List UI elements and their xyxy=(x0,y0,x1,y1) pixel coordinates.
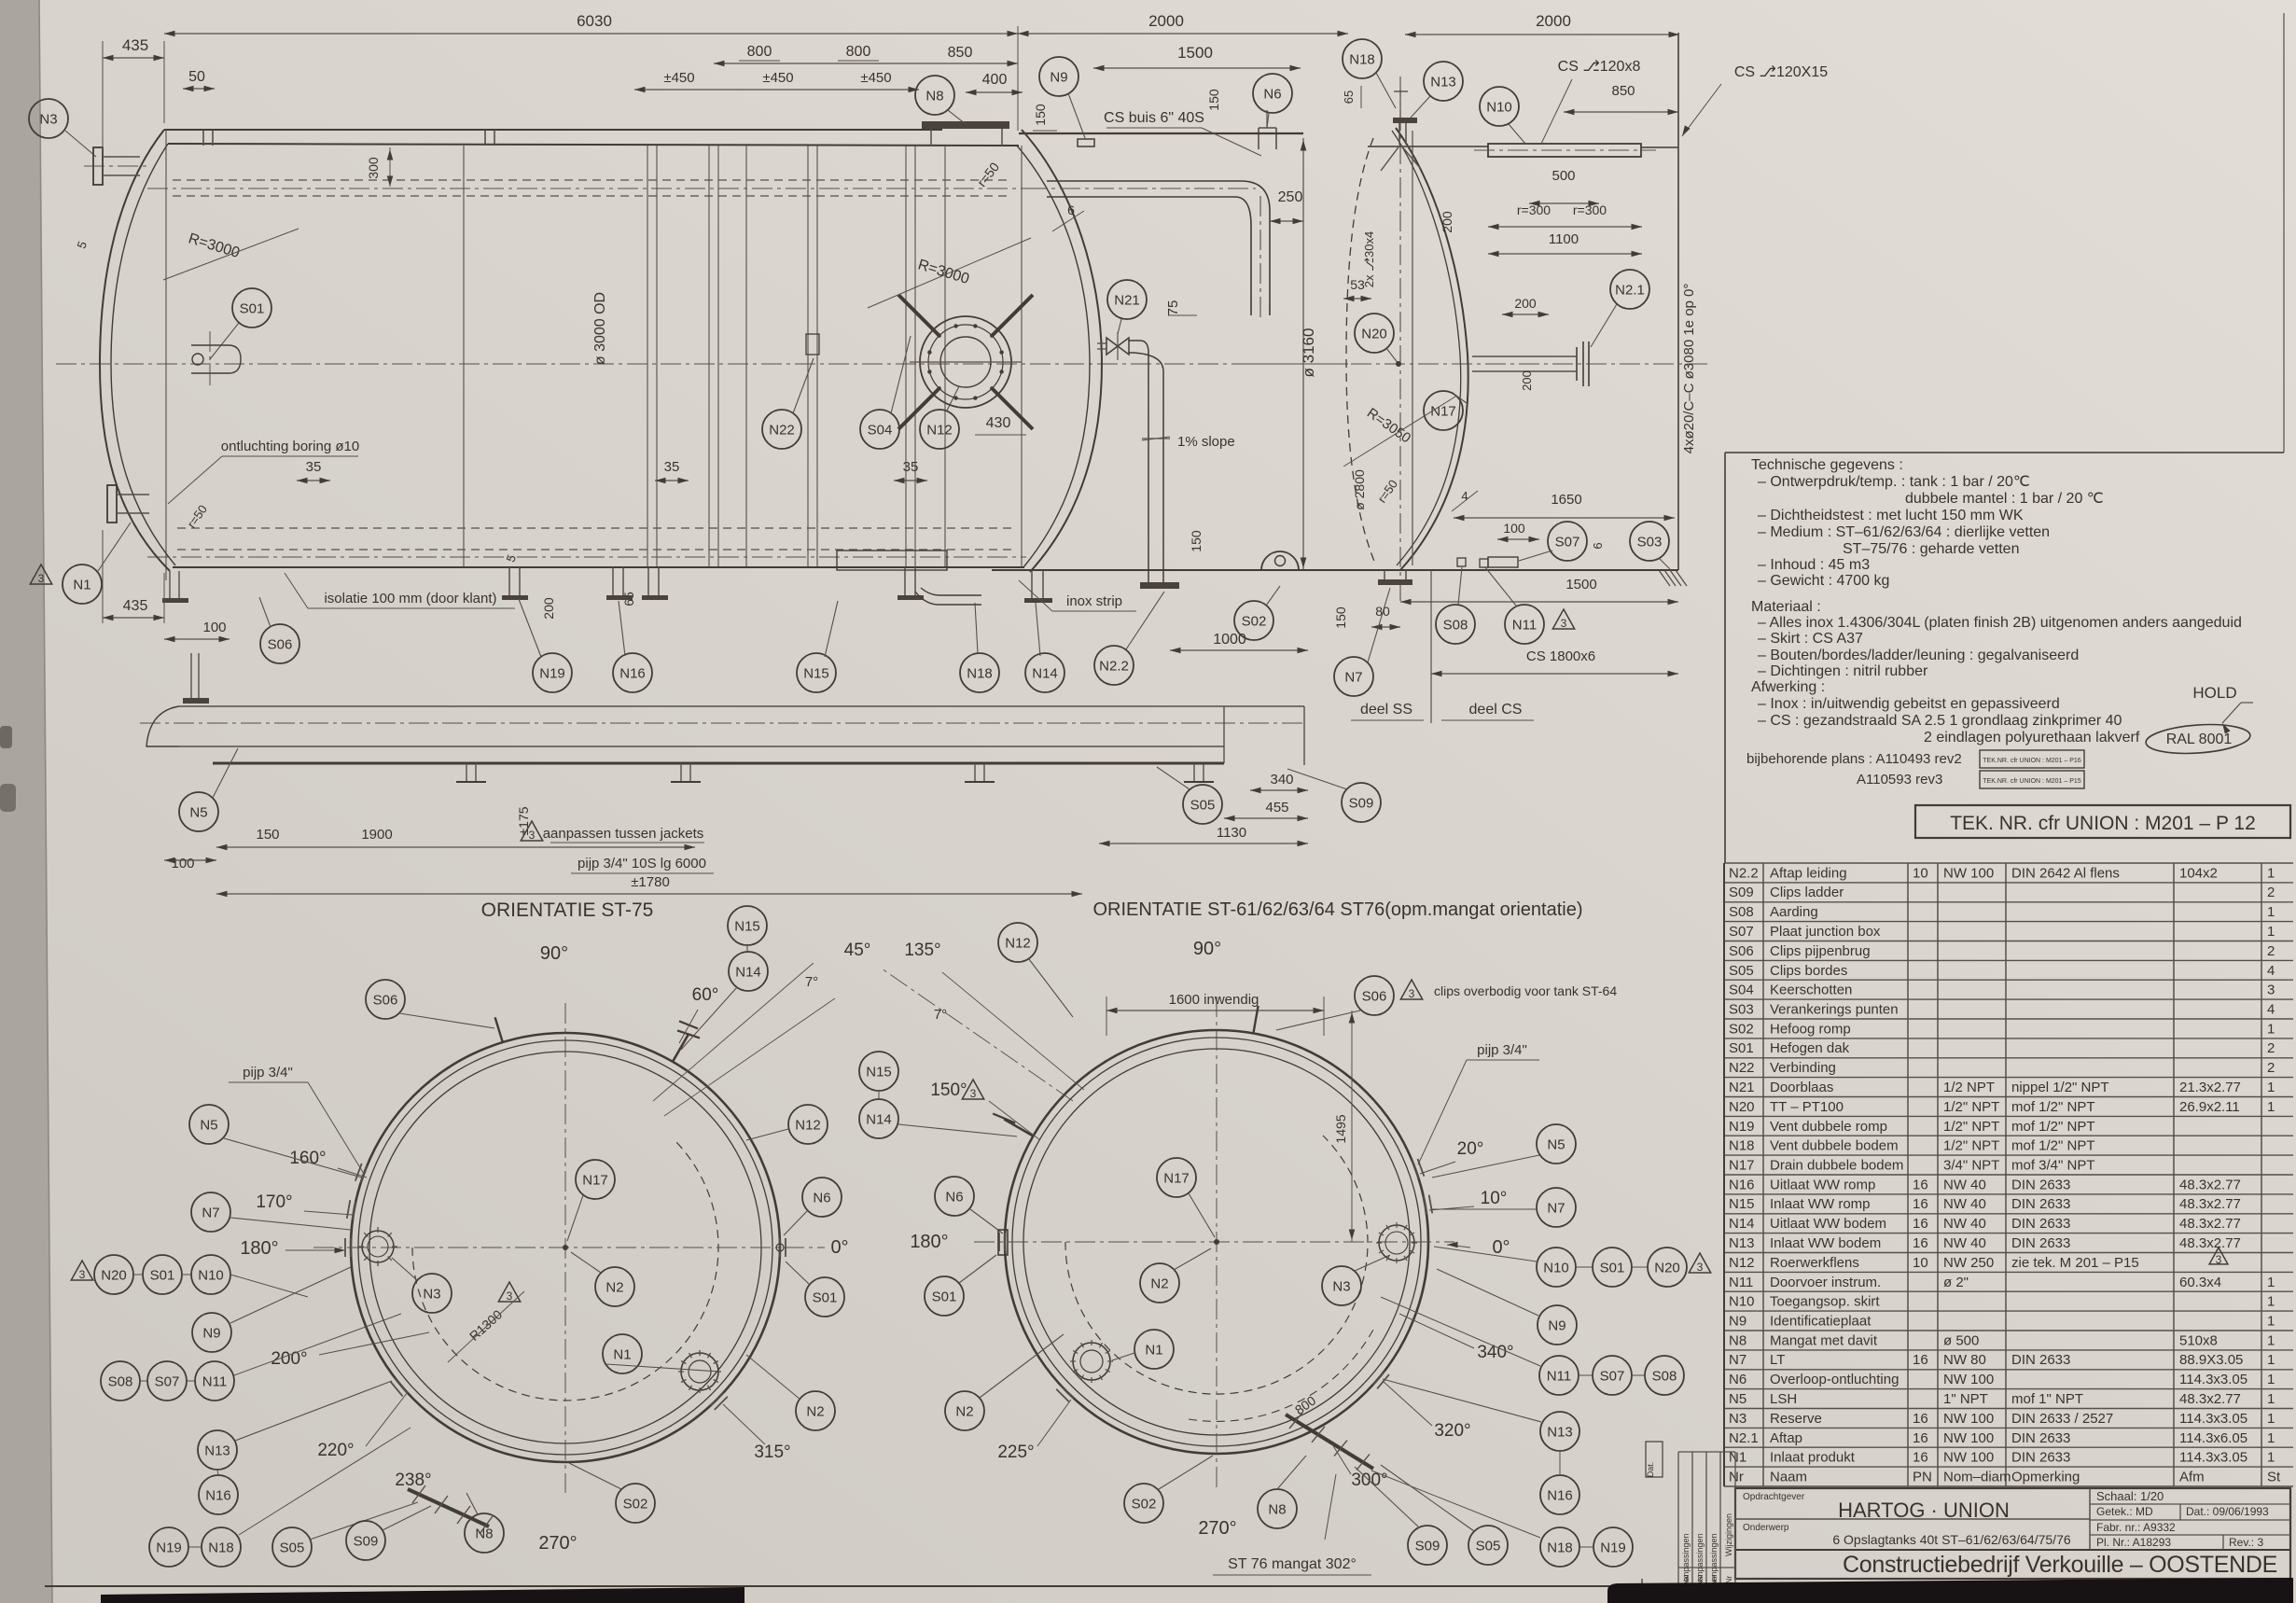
svg-text:270°: 270° xyxy=(1198,1518,1236,1539)
svg-text:1/2" NPT: 1/2" NPT xyxy=(1943,1099,1999,1115)
svg-text:N2: N2 xyxy=(955,1403,973,1419)
svg-text:Uitlaat WW romp: Uitlaat WW romp xyxy=(1770,1177,1875,1192)
svg-text:435: 435 xyxy=(123,598,148,614)
svg-text:75: 75 xyxy=(1165,300,1181,316)
svg-text:N14: N14 xyxy=(1729,1216,1755,1232)
svg-text:N3: N3 xyxy=(1332,1278,1350,1294)
svg-text:S07: S07 xyxy=(1555,534,1580,550)
svg-text:1130: 1130 xyxy=(1217,825,1246,841)
svg-text:Vent dubbele romp: Vent dubbele romp xyxy=(1770,1119,1887,1135)
svg-text:mof 1/2" NPT: mof 1/2" NPT xyxy=(2011,1138,2095,1154)
svg-text:510x8: 510x8 xyxy=(2179,1332,2218,1348)
svg-text:mof 1/2" NPT: mof 1/2" NPT xyxy=(2011,1099,2095,1115)
svg-text:S08: S08 xyxy=(108,1373,133,1389)
svg-text:ø 3000 OD: ø 3000 OD xyxy=(592,292,608,365)
svg-text:N6: N6 xyxy=(1729,1372,1746,1387)
svg-text:Afm: Afm xyxy=(2179,1470,2205,1485)
svg-text:Onderwerp: Onderwerp xyxy=(1743,1523,1789,1533)
svg-text:N2: N2 xyxy=(605,1279,623,1295)
svg-text:– Dichtingen : nitril rubber: – Dichtingen : nitril rubber xyxy=(1758,663,1928,679)
svg-text:Uitlaat WW bodem: Uitlaat WW bodem xyxy=(1770,1216,1886,1232)
svg-text:DIN 2633: DIN 2633 xyxy=(2011,1196,2070,1212)
svg-text:48.3x2.77: 48.3x2.77 xyxy=(2179,1235,2241,1251)
svg-text:435: 435 xyxy=(122,36,148,54)
svg-text:1000: 1000 xyxy=(1213,632,1246,648)
svg-text:2000: 2000 xyxy=(1536,12,1571,30)
svg-text:320°: 320° xyxy=(1434,1421,1470,1441)
svg-text:1: 1 xyxy=(2267,1352,2275,1368)
svg-text:Afwerking :: Afwerking : xyxy=(1751,679,1825,695)
svg-text:48.3x2.77: 48.3x2.77 xyxy=(2179,1216,2241,1232)
svg-text:N19: N19 xyxy=(539,665,565,681)
svg-text:N9: N9 xyxy=(202,1325,220,1341)
svg-text:ø 2800: ø 2800 xyxy=(1352,469,1367,510)
svg-text:Fabr. nr.: A9332: Fabr. nr.: A9332 xyxy=(2096,1521,2176,1534)
svg-text:180°: 180° xyxy=(240,1238,278,1259)
svg-text:Clips bordes: Clips bordes xyxy=(1770,963,1847,979)
svg-text:16: 16 xyxy=(1913,1450,1928,1466)
svg-text:N6: N6 xyxy=(945,1189,963,1205)
svg-text:LT: LT xyxy=(1770,1352,1785,1368)
svg-text:S09: S09 xyxy=(1349,795,1374,811)
svg-text:– Inhoud : 45 m3: – Inhoud : 45 m3 xyxy=(1758,557,1870,573)
svg-text:300: 300 xyxy=(366,157,381,179)
svg-text:800: 800 xyxy=(846,44,871,60)
svg-text:N7: N7 xyxy=(1547,1200,1565,1216)
svg-text:TEK.NR. cfr UNION : M201 – P16: TEK.NR. cfr UNION : M201 – P16 xyxy=(1983,758,2081,764)
svg-text:500: 500 xyxy=(1552,168,1575,184)
svg-text:A110593 rev3: A110593 rev3 xyxy=(1857,772,1942,788)
svg-text:ORIENTATIE ST-61/62/63/64 ST7: ORIENTATIE ST-61/62/63/64 ST76(opm.manga… xyxy=(1092,899,1582,920)
svg-text:N7: N7 xyxy=(202,1205,219,1220)
svg-text:Inlaat WW romp: Inlaat WW romp xyxy=(1770,1196,1871,1212)
svg-text:1: 1 xyxy=(2267,865,2275,881)
svg-text:Materiaal :: Materiaal : xyxy=(1751,599,1821,615)
svg-text:N9: N9 xyxy=(1729,1314,1746,1330)
svg-text:N19: N19 xyxy=(156,1540,182,1555)
svg-text:N15: N15 xyxy=(803,665,829,681)
svg-text:Clips pijpenbrug: Clips pijpenbrug xyxy=(1770,943,1871,959)
svg-text:S06: S06 xyxy=(268,636,293,652)
svg-text:1/2" NPT: 1/2" NPT xyxy=(1943,1138,1999,1154)
svg-text:1: 1 xyxy=(2267,1332,2275,1348)
svg-text:1/2" NPT: 1/2" NPT xyxy=(1943,1119,1999,1135)
svg-text:DIN 2633: DIN 2633 xyxy=(2011,1216,2070,1232)
svg-text:Doorblaas: Doorblaas xyxy=(1770,1080,1833,1095)
svg-text:N15: N15 xyxy=(734,918,760,934)
svg-text:Nom–diam: Nom–diam xyxy=(1943,1470,2011,1485)
svg-text:1100: 1100 xyxy=(1549,231,1579,247)
svg-text:ø 500: ø 500 xyxy=(1943,1332,1979,1348)
svg-text:N11: N11 xyxy=(202,1373,227,1389)
svg-text:±1780: ±1780 xyxy=(631,874,670,890)
svg-text:S05: S05 xyxy=(1190,797,1216,813)
svg-text:N2.2: N2.2 xyxy=(1729,865,1759,881)
svg-text:S03: S03 xyxy=(1729,1002,1754,1018)
svg-text:DIN 2633 / 2527: DIN 2633 / 2527 xyxy=(2011,1411,2113,1427)
svg-text:N21: N21 xyxy=(1114,292,1140,308)
svg-text:N3: N3 xyxy=(1729,1411,1746,1427)
svg-text:2: 2 xyxy=(2267,943,2275,959)
svg-text:150°: 150° xyxy=(930,1080,967,1100)
svg-text:N5: N5 xyxy=(1547,1136,1565,1152)
svg-text:400: 400 xyxy=(982,72,1008,88)
svg-text:53: 53 xyxy=(1350,277,1365,292)
svg-text:deel SS: deel SS xyxy=(1360,702,1412,718)
svg-text:Aftap leiding: Aftap leiding xyxy=(1770,865,1847,881)
svg-text:Inlaat WW bodem: Inlaat WW bodem xyxy=(1770,1235,1881,1251)
svg-text:1" NPT: 1" NPT xyxy=(1943,1391,1988,1407)
svg-text:250: 250 xyxy=(1278,189,1303,205)
svg-text:3: 3 xyxy=(507,1289,513,1303)
svg-text:DIN 2633: DIN 2633 xyxy=(2011,1430,2070,1446)
svg-text:S08: S08 xyxy=(1729,904,1754,920)
svg-text:60°: 60° xyxy=(692,985,719,1005)
svg-text:N8: N8 xyxy=(1729,1332,1746,1348)
svg-text:r=300: r=300 xyxy=(1517,202,1551,217)
svg-text:NW 100: NW 100 xyxy=(1943,1450,1994,1466)
svg-text:220°: 220° xyxy=(317,1441,354,1460)
svg-text:Identificatieplaat: Identificatieplaat xyxy=(1770,1314,1872,1330)
svg-text:100: 100 xyxy=(202,620,226,635)
svg-text:N13: N13 xyxy=(1729,1235,1755,1251)
svg-text:±450: ±450 xyxy=(762,70,793,86)
svg-text:ST–75/76 : geharde vetten: ST–75/76 : geharde vetten xyxy=(1843,541,2019,557)
svg-text:7°: 7° xyxy=(805,974,818,990)
svg-text:135°: 135° xyxy=(904,941,940,960)
svg-text:6: 6 xyxy=(1067,202,1075,217)
svg-text:ST 76 mangat 302°: ST 76 mangat 302° xyxy=(1228,1556,1357,1572)
svg-text:10°: 10° xyxy=(1481,1189,1508,1208)
svg-text:N12: N12 xyxy=(1005,935,1031,951)
svg-text:3: 3 xyxy=(2216,1253,2222,1266)
svg-text:N18: N18 xyxy=(1349,51,1375,67)
svg-text:N5: N5 xyxy=(200,1117,217,1133)
svg-text:ø 3160: ø 3160 xyxy=(1300,328,1317,378)
svg-text:NW 100: NW 100 xyxy=(1943,1430,1994,1446)
svg-text:S09: S09 xyxy=(1729,885,1754,900)
svg-text:NW 100: NW 100 xyxy=(1943,1372,1994,1387)
svg-text:26.9x2.11: 26.9x2.11 xyxy=(2179,1099,2240,1115)
svg-text:0°: 0° xyxy=(830,1237,848,1258)
svg-text:HOLD: HOLD xyxy=(2192,684,2236,702)
svg-text:Roerwerkflens: Roerwerkflens xyxy=(1770,1255,1859,1271)
svg-text:S07: S07 xyxy=(155,1373,180,1389)
svg-text:16: 16 xyxy=(1913,1430,1928,1446)
svg-text:N20: N20 xyxy=(1729,1099,1755,1115)
svg-text:3/4" NPT: 3/4" NPT xyxy=(1943,1158,1999,1174)
svg-text:Keerschotten: Keerschotten xyxy=(1770,983,1852,998)
svg-text:deel CS: deel CS xyxy=(1469,702,1523,718)
svg-text:2000: 2000 xyxy=(1148,12,1184,30)
svg-text:S04: S04 xyxy=(868,422,893,438)
svg-text:NW 250: NW 250 xyxy=(1943,1255,1994,1271)
svg-text:104x2: 104x2 xyxy=(2179,865,2218,881)
svg-text:N5: N5 xyxy=(1729,1391,1746,1407)
svg-text:dubbele mantel : 1 bar / 20 ℃: dubbele mantel : 1 bar / 20 ℃ xyxy=(1905,491,2104,507)
svg-text:180°: 180° xyxy=(910,1232,948,1252)
svg-text:N14: N14 xyxy=(735,964,761,980)
svg-text:RAL 8001: RAL 8001 xyxy=(2166,732,2233,747)
svg-text:1: 1 xyxy=(2267,904,2275,920)
svg-text:N18: N18 xyxy=(1729,1138,1755,1154)
svg-text:315°: 315° xyxy=(754,1443,790,1462)
svg-text:21.3x2.77: 21.3x2.77 xyxy=(2179,1080,2241,1095)
svg-text:200: 200 xyxy=(1520,370,1534,391)
svg-text:S06: S06 xyxy=(373,992,398,1008)
svg-text:1% slope: 1% slope xyxy=(1177,434,1235,450)
svg-text:S08: S08 xyxy=(1443,617,1468,633)
svg-text:150: 150 xyxy=(1333,606,1348,629)
svg-text:N2.1: N2.1 xyxy=(1615,282,1645,298)
svg-text:S09: S09 xyxy=(1415,1538,1440,1554)
svg-text:Plaat junction box: Plaat junction box xyxy=(1770,924,1881,940)
svg-text:35: 35 xyxy=(664,459,680,475)
svg-text:NW 80: NW 80 xyxy=(1943,1352,1986,1368)
svg-text:aanpassen tussen jackets: aanpassen tussen jackets xyxy=(543,826,704,842)
svg-text:N19: N19 xyxy=(1729,1119,1755,1135)
svg-text:3: 3 xyxy=(79,1268,86,1281)
svg-text:S01: S01 xyxy=(150,1267,175,1283)
svg-text:TT – PT100: TT – PT100 xyxy=(1770,1099,1844,1115)
svg-text:1: 1 xyxy=(2267,1372,2275,1387)
svg-text:CS ⎇120x8: CS ⎇120x8 xyxy=(1558,59,1641,75)
svg-text:mof 3/4" NPT: mof 3/4" NPT xyxy=(2011,1158,2095,1174)
svg-text:N18: N18 xyxy=(1547,1540,1573,1555)
svg-text:S06: S06 xyxy=(1729,943,1754,959)
svg-text:– CS : gezandstraald SA 2.5: – CS : gezandstraald SA 2.5 1 grondlaag … xyxy=(1758,713,2122,729)
svg-text:N20: N20 xyxy=(1654,1260,1680,1275)
svg-text:N9: N9 xyxy=(1050,69,1067,85)
svg-text:1: 1 xyxy=(2267,1021,2275,1037)
svg-text:Inlaat produkt: Inlaat produkt xyxy=(1770,1450,1856,1466)
svg-text:S01: S01 xyxy=(240,300,265,316)
svg-text:mof 1/2" NPT: mof 1/2" NPT xyxy=(2011,1119,2095,1135)
svg-text:N19: N19 xyxy=(1600,1540,1626,1555)
svg-text:Opdrachtgever: Opdrachtgever xyxy=(1743,1492,1805,1502)
svg-text:DIN 2633: DIN 2633 xyxy=(2011,1450,2070,1466)
svg-text:– Bouten/bordes/ladder/leunin: – Bouten/bordes/ladder/leuning : gegalva… xyxy=(1758,648,2079,663)
svg-text:Schaal: 1/20: Schaal: 1/20 xyxy=(2096,1489,2164,1503)
svg-text:Verbinding: Verbinding xyxy=(1770,1060,1836,1076)
svg-text:2 eindlagen polyurethaan lakve: 2 eindlagen polyurethaan lakverf xyxy=(1924,730,2140,746)
svg-text:Verankerings punten: Verankerings punten xyxy=(1770,1002,1899,1018)
svg-text:N2.2: N2.2 xyxy=(1099,658,1129,674)
svg-text:48.3x2.77: 48.3x2.77 xyxy=(2179,1196,2241,1212)
svg-text:CS ⎇120X15: CS ⎇120X15 xyxy=(1734,64,1828,80)
svg-text:N15: N15 xyxy=(866,1064,892,1080)
svg-text:Hefoog romp: Hefoog romp xyxy=(1770,1021,1851,1037)
svg-text:1: 1 xyxy=(2267,1314,2275,1330)
svg-text:N7: N7 xyxy=(1344,669,1362,685)
svg-text:Wijzigingen: Wijzigingen xyxy=(1724,1513,1733,1556)
svg-text:Clips ladder: Clips ladder xyxy=(1770,885,1844,900)
svg-text:N21: N21 xyxy=(1729,1080,1755,1095)
svg-text:N17: N17 xyxy=(1729,1158,1755,1174)
svg-text:Reserve: Reserve xyxy=(1770,1411,1822,1427)
svg-text:N16: N16 xyxy=(205,1487,231,1503)
svg-text:150: 150 xyxy=(256,827,279,843)
svg-text:35: 35 xyxy=(306,459,322,475)
svg-text:1650: 1650 xyxy=(1551,492,1581,508)
svg-text:mof 1" NPT: mof 1" NPT xyxy=(2011,1391,2083,1407)
svg-text:N20: N20 xyxy=(1361,326,1387,342)
svg-text:N6: N6 xyxy=(1263,86,1281,102)
svg-text:1900: 1900 xyxy=(361,827,392,843)
svg-text:N2: N2 xyxy=(806,1403,824,1419)
svg-text:90°: 90° xyxy=(540,943,568,964)
svg-text:N17: N17 xyxy=(582,1172,608,1188)
svg-text:1: 1 xyxy=(2267,1430,2275,1446)
svg-text:Pl. Nr.: A18293: Pl. Nr.: A18293 xyxy=(2096,1536,2171,1549)
svg-text:– Dichtheidstest : met lucht: – Dichtheidstest : met lucht 150 mm WK xyxy=(1758,508,2024,523)
svg-text:16: 16 xyxy=(1913,1196,1928,1212)
svg-text:850: 850 xyxy=(1611,83,1635,99)
svg-text:– Inox : in/uitwendig gebeits: – Inox : in/uitwendig gebeitst en gepass… xyxy=(1758,696,2060,712)
svg-text:N6: N6 xyxy=(813,1190,830,1206)
svg-text:Opmerking: Opmerking xyxy=(2011,1470,2080,1485)
svg-text:N10: N10 xyxy=(198,1267,224,1283)
svg-text:S03: S03 xyxy=(1637,534,1663,550)
svg-text:Aftap: Aftap xyxy=(1770,1430,1802,1446)
svg-text:Technische gegevens :: Technische gegevens : xyxy=(1751,457,1903,473)
svg-text:NW 40: NW 40 xyxy=(1943,1177,1986,1192)
svg-text:3: 3 xyxy=(2267,983,2275,998)
svg-text:48.3x2.77: 48.3x2.77 xyxy=(2179,1177,2241,1192)
svg-text:114.3x6.05: 114.3x6.05 xyxy=(2179,1430,2247,1446)
svg-text:N1: N1 xyxy=(73,577,90,592)
svg-text:DIN 2633: DIN 2633 xyxy=(2011,1177,2070,1192)
svg-text:200: 200 xyxy=(541,597,556,620)
svg-text:455: 455 xyxy=(1265,800,1288,815)
svg-text:zie tek. M 201 – P15: zie tek. M 201 – P15 xyxy=(2011,1255,2139,1271)
svg-text:S02: S02 xyxy=(1132,1496,1157,1512)
svg-text:S08: S08 xyxy=(1652,1368,1677,1384)
svg-text:1: 1 xyxy=(2267,1080,2275,1095)
svg-text:DIN 2642 Al flens: DIN 2642 Al flens xyxy=(2011,865,2120,881)
svg-text:4xø20/C–C ø3080 1e op 0°: 4xø20/C–C ø3080 1e op 0° xyxy=(1681,284,1697,454)
svg-text:35: 35 xyxy=(903,459,919,475)
svg-text:48.3x2.77: 48.3x2.77 xyxy=(2179,1391,2241,1407)
svg-text:270°: 270° xyxy=(538,1533,577,1554)
svg-text:1: 1 xyxy=(2267,1099,2275,1115)
svg-text:Getek.: MD: Getek.: MD xyxy=(2096,1505,2153,1518)
svg-text:N3: N3 xyxy=(423,1286,440,1302)
svg-text:LSH: LSH xyxy=(1770,1391,1797,1407)
svg-text:225°: 225° xyxy=(997,1443,1034,1462)
svg-text:N2: N2 xyxy=(1150,1275,1168,1291)
svg-text:Rev.: 3: Rev.: 3 xyxy=(2229,1536,2263,1549)
svg-text:200: 200 xyxy=(1440,211,1454,233)
svg-text:1: 1 xyxy=(2267,1391,2275,1407)
svg-text:114.3x3.05: 114.3x3.05 xyxy=(2179,1411,2247,1427)
svg-text:850: 850 xyxy=(948,45,973,61)
svg-text:N9: N9 xyxy=(1548,1317,1565,1333)
svg-text:Hefogen dak: Hefogen dak xyxy=(1770,1040,1850,1056)
svg-text:S06: S06 xyxy=(1362,988,1387,1004)
svg-text:16: 16 xyxy=(1913,1216,1928,1232)
svg-text:N3: N3 xyxy=(39,111,57,127)
svg-text:3: 3 xyxy=(38,572,45,585)
svg-text:3: 3 xyxy=(1409,987,1415,1000)
svg-text:N12: N12 xyxy=(795,1117,821,1133)
svg-text:4: 4 xyxy=(2267,963,2275,979)
svg-text:ORIENTATIE ST-75: ORIENTATIE ST-75 xyxy=(481,899,654,921)
svg-text:CS buis 6" 40S: CS buis 6" 40S xyxy=(1104,110,1204,126)
svg-text:N22: N22 xyxy=(769,422,795,438)
svg-text:S01: S01 xyxy=(932,1289,957,1304)
svg-text:N7: N7 xyxy=(1729,1352,1746,1368)
svg-text:±450: ±450 xyxy=(860,70,891,86)
svg-text:N12: N12 xyxy=(926,422,953,438)
svg-text:10: 10 xyxy=(1913,865,1928,881)
svg-text:Aarding: Aarding xyxy=(1770,904,1818,920)
svg-text:N13: N13 xyxy=(1430,74,1456,90)
svg-text:– Gewicht : 4700 kg: – Gewicht : 4700 kg xyxy=(1758,573,1889,589)
svg-text:inox strip: inox strip xyxy=(1066,593,1122,609)
svg-text:150: 150 xyxy=(1033,104,1048,126)
svg-text:NW 100: NW 100 xyxy=(1943,865,1994,881)
svg-text:CS 1800x6: CS 1800x6 xyxy=(1526,648,1595,664)
svg-text:16: 16 xyxy=(1913,1352,1928,1368)
svg-text:N16: N16 xyxy=(619,665,646,681)
svg-text:St: St xyxy=(2267,1470,2281,1485)
svg-text:150: 150 xyxy=(1189,530,1204,552)
svg-text:20°: 20° xyxy=(1457,1139,1484,1159)
svg-text:88.9X3.05: 88.9X3.05 xyxy=(2179,1352,2243,1368)
svg-text:NW 40: NW 40 xyxy=(1943,1235,1986,1251)
svg-text:65: 65 xyxy=(1342,91,1356,104)
svg-text:N14: N14 xyxy=(866,1111,892,1127)
svg-text:Doorvoer instrum.: Doorvoer instrum. xyxy=(1770,1275,1881,1290)
svg-text:N14: N14 xyxy=(1032,665,1058,681)
svg-text:6 Opslagtanks 40t ST–61: 6 Opslagtanks 40t ST–61/62/63/64/75/76 xyxy=(1832,1532,2071,1547)
svg-text:S02: S02 xyxy=(623,1496,648,1512)
svg-text:S01: S01 xyxy=(1729,1040,1754,1056)
svg-text:Naam: Naam xyxy=(1770,1470,1807,1485)
svg-text:pijp 3/4" 10S lg 6000: pijp 3/4" 10S lg 6000 xyxy=(577,856,706,871)
svg-text:N10: N10 xyxy=(1729,1294,1755,1310)
svg-text:N13: N13 xyxy=(1547,1424,1573,1440)
svg-text:N17: N17 xyxy=(1430,403,1456,419)
svg-text:1600 inwendig: 1600 inwendig xyxy=(1169,992,1259,1008)
svg-text:10: 10 xyxy=(1913,1255,1928,1271)
svg-text:Vent dubbele bodem: Vent dubbele bodem xyxy=(1770,1138,1899,1154)
svg-text:800: 800 xyxy=(747,44,772,60)
svg-text:3: 3 xyxy=(1683,1574,1689,1584)
svg-text:Overloop-ontluchting: Overloop-ontluchting xyxy=(1770,1372,1899,1387)
svg-text:45°: 45° xyxy=(844,941,871,960)
svg-text:NW 100: NW 100 xyxy=(1943,1411,1994,1427)
svg-text:6030: 6030 xyxy=(577,12,612,30)
svg-text:ontluchting boring ø10: ontluchting boring ø10 xyxy=(221,439,359,454)
svg-text:N10: N10 xyxy=(1543,1260,1569,1275)
svg-text:TEK.NR. cfr UNION : M201 – P15: TEK.NR. cfr UNION : M201 – P15 xyxy=(1983,778,2081,785)
svg-text:N1: N1 xyxy=(613,1346,631,1362)
svg-text:N17: N17 xyxy=(1163,1170,1190,1186)
svg-text:4: 4 xyxy=(2267,1002,2275,1018)
svg-text:Dat.: 09/06/1993: Dat.: 09/06/1993 xyxy=(2186,1505,2269,1518)
svg-text:Drain dubbele bodem: Drain dubbele bodem xyxy=(1770,1158,1903,1174)
svg-text:3: 3 xyxy=(1561,617,1567,630)
svg-text:N16: N16 xyxy=(1729,1177,1755,1192)
svg-text:1500: 1500 xyxy=(1177,44,1213,62)
svg-text:1: 1 xyxy=(2267,1275,2275,1290)
svg-text:pijp 3/4": pijp 3/4" xyxy=(243,1065,293,1080)
svg-text:N12: N12 xyxy=(1729,1255,1755,1271)
svg-text:1/2 NPT: 1/2 NPT xyxy=(1943,1080,1995,1095)
svg-text:Toegangsop. skirt: Toegangsop. skirt xyxy=(1770,1294,1880,1310)
